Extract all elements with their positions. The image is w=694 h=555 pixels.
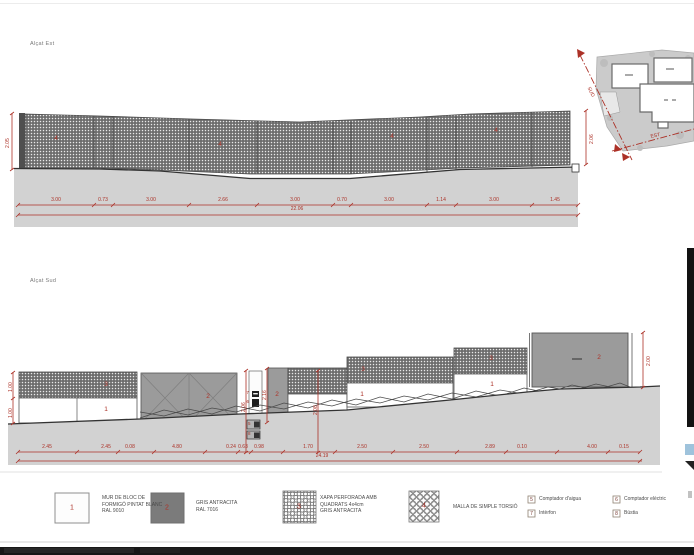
south-dim: 4.00 [587,444,597,450]
callout-water: 5 [248,421,251,426]
south-height-left-bottom: 1.00 [8,408,14,418]
south-dim: 1.70 [303,444,313,450]
site-plan-key [577,49,694,161]
east-panel-label: 4 [494,127,498,134]
south-dim: 0.08 [125,444,135,450]
east-elevation-title: Alçat Est [30,41,54,47]
east-dim: 3.00 [290,197,300,203]
legend-num-2: 2 [165,505,169,512]
material-label-wall2: 1 [360,391,364,398]
legend-meter-label-water: Comptador d'aigua [539,496,581,502]
material-label-band2: 3 [361,366,365,373]
legend-meter-num-mailbox: 8 [615,511,618,517]
material-label-band3: 3 [489,355,493,362]
east-dim: 3.00 [489,197,499,203]
legend-num-4: 4 [422,503,426,510]
material-label-band1: 3 [104,381,108,388]
callout-intercom: 7 [246,390,249,395]
legend-meter-num-electric: 6 [615,497,618,503]
south-height-left-top: 1.00 [8,382,14,392]
south-dim: 0.15 [619,444,629,450]
adjacent-window-smudge [688,491,692,498]
east-height-dim-left: 2.05 [5,138,11,148]
material-label-gate2: 2 [275,391,279,398]
south-height-gate3: 2.00 [646,356,652,366]
east-mesh-fence [25,111,570,174]
east-height-dim-right: 2.06 [589,134,595,144]
legend-num-1: 1 [70,505,74,512]
material-label-wall3: 1 [490,381,494,388]
east-dim: 3.00 [384,197,394,203]
adjacent-window-edge [687,248,694,427]
south-perf-band-2 [288,368,347,394]
south-dim: 2.89 [485,444,495,450]
south-gate-3 [530,333,633,387]
legend-text-2: GRIS ANTRACITA RAL 7016 [196,500,237,513]
bottom-taskbar[interactable] [0,547,694,555]
east-dim: 3.00 [51,197,61,203]
south-elevation-title: Alçat Sud [30,278,56,284]
east-panel-label: 4 [54,135,58,142]
east-gate-post-marker [572,164,579,172]
east-total-dim: 22.06 [291,206,304,212]
south-dim: 2.45 [101,444,111,450]
drawing-sheet: Alçat Est Alçat Sud 4 4 4 4 3.00 0.73 3.… [0,0,694,555]
south-dim: 0.24 [226,444,236,450]
south-height-pillar: 2.06 [241,402,247,412]
adjacent-window-chip [685,444,694,455]
east-dim: 3.00 [146,197,156,203]
legend-text-3: XAPA PERFORADA AMB QUADRATS 4x4cm GRIS A… [320,495,377,515]
legend-text-1: MUR DE BLOC DE FORMIGÓ PINTAT BLANC RAL … [102,495,162,515]
material-label-gate3: 2 [597,354,601,361]
material-label-wall1: 1 [104,406,108,413]
legend-text-4: MALLA DE SIMPLE TORSIÓ [453,504,518,511]
drawing-canvas [0,0,694,555]
south-perf-band-1 [19,372,137,398]
south-dim: 0.10 [517,444,527,450]
south-dim: 0.63 [238,444,248,450]
legend-meter-label-mailbox: Bústia [624,510,638,516]
south-dim: 4.80 [172,444,182,450]
south-total-dim: 24.19 [316,453,329,459]
east-panel-label: 4 [218,141,222,148]
taskbar-items [4,548,134,553]
legend-meter-label-intercom: Intèrfon [539,510,556,516]
east-dim: 0.73 [98,197,108,203]
callout-mailbox: 8 [248,431,251,436]
legend-num-3: 3 [297,504,301,511]
south-dim: 2.50 [419,444,429,450]
south-dim: 0.98 [254,444,264,450]
legend-meter-label-electric: Comptador elèctric [624,496,666,502]
taskbar-item [140,548,180,553]
south-height-gate2: 2.16 [262,390,268,400]
south-dim: 2.50 [357,444,367,450]
material-label-gate1: 2 [206,393,210,400]
adjacent-window-wedge-icon [685,461,694,470]
legend-meter-num-intercom: 7 [530,511,533,517]
east-dim: 1.45 [550,197,560,203]
east-dim: 0.70 [337,197,347,203]
east-panel-label: 4 [390,133,394,140]
south-dim: 2.45 [42,444,52,450]
east-dim: 1.14 [436,197,446,203]
east-dim: 2.66 [218,197,228,203]
legend-meter-num-water: 5 [530,497,533,503]
south-height-band: 2.08 [313,405,319,415]
